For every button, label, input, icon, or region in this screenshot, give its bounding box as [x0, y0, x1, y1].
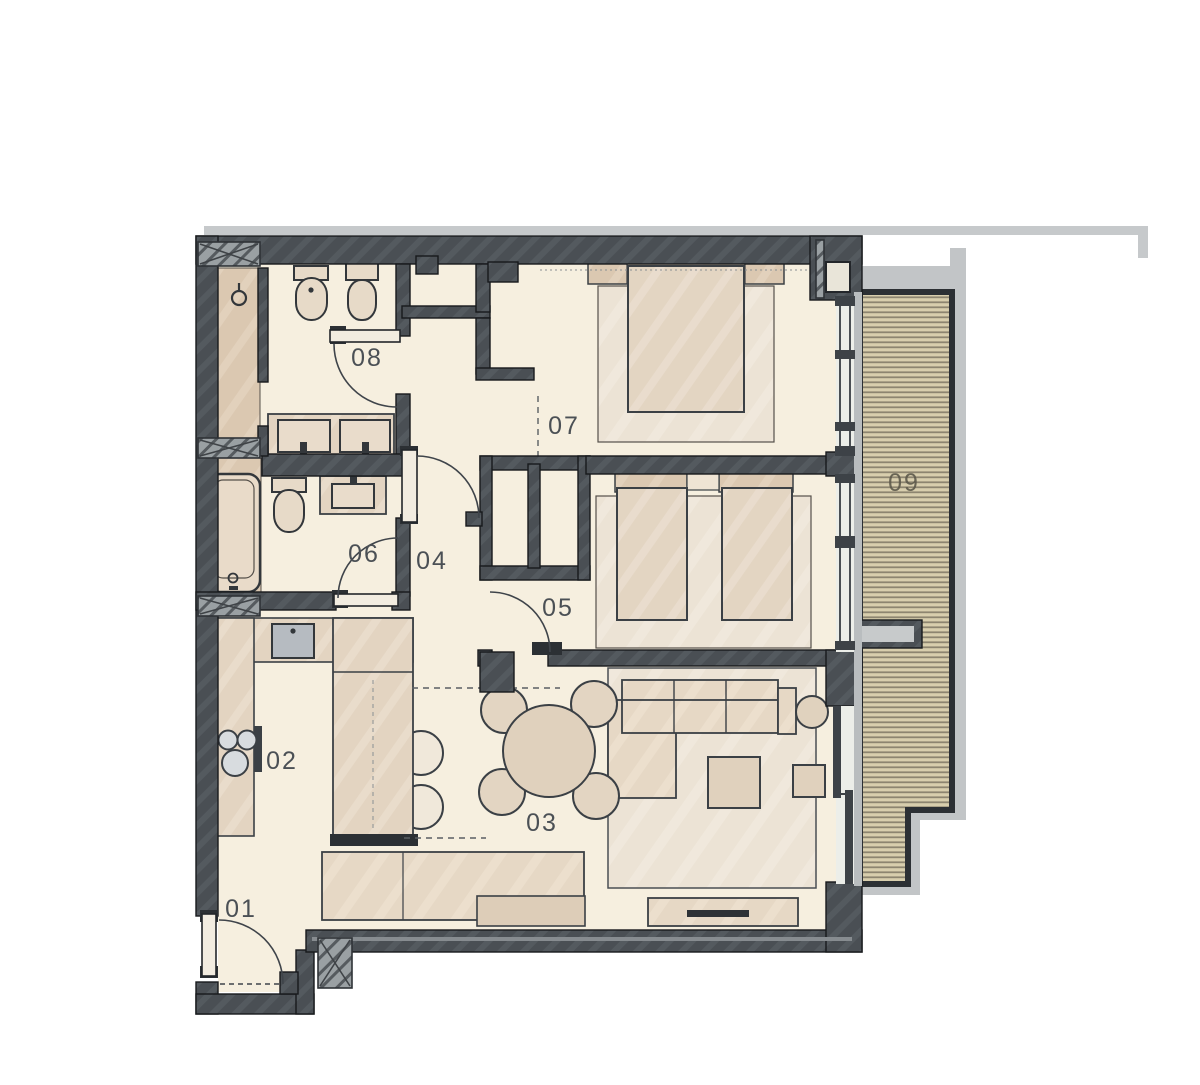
room-label-06: 06: [348, 540, 380, 568]
balcony: [856, 248, 966, 895]
sink-faucet: [290, 628, 295, 633]
single-bed: [722, 488, 792, 620]
room-label-04: 04: [416, 547, 448, 575]
double-bed: [628, 266, 744, 412]
cooktop-burner: [222, 750, 248, 776]
sofa-back: [622, 680, 778, 702]
room-label-07: 07: [548, 412, 580, 440]
windows: [833, 292, 862, 886]
washbasin: [332, 484, 374, 508]
single-bed: [617, 488, 687, 620]
balcony-deck: [860, 292, 952, 884]
floor-plan-drawing: 01 02 03 04 05 06 07 08 09: [0, 0, 1200, 1085]
room-label-02: 02: [266, 747, 298, 775]
kitchen-counter-left: [216, 618, 254, 836]
room-label-08: 08: [351, 344, 383, 372]
sliding-door-living: [833, 706, 854, 884]
bench: [477, 896, 585, 926]
toilet-bowl: [274, 490, 304, 532]
toilet-tank: [346, 262, 378, 280]
cooktop-burner: [219, 731, 238, 750]
cooktop-knobs: [254, 726, 262, 772]
floor-plan: 01 02 03 04 05 06 07 08 09: [0, 0, 1200, 1085]
corner-window: [826, 262, 850, 292]
side-table-round: [796, 696, 828, 728]
side-table: [793, 765, 825, 797]
room-label-03: 03: [526, 809, 558, 837]
window-bedroom-05: [835, 474, 855, 652]
dining-table: [503, 705, 595, 797]
island-end-cap: [330, 834, 418, 846]
room-label-01: 01: [225, 895, 257, 923]
sofa-seat: [622, 700, 778, 733]
bedroom-05: [596, 470, 811, 648]
window-bedroom-07: [835, 296, 855, 456]
room-label-05: 05: [542, 594, 574, 622]
wall-inner-line: [312, 937, 852, 941]
shower-floor: [216, 268, 260, 454]
bidet-bowl: [296, 278, 327, 320]
coffee-table: [708, 757, 760, 808]
bedside-shelf: [687, 472, 719, 490]
room-label-09: 09: [888, 469, 920, 497]
cooktop-burner: [238, 731, 257, 750]
toilet-bowl: [348, 280, 376, 320]
sofa-armrest: [778, 688, 796, 734]
tv: [687, 910, 749, 917]
